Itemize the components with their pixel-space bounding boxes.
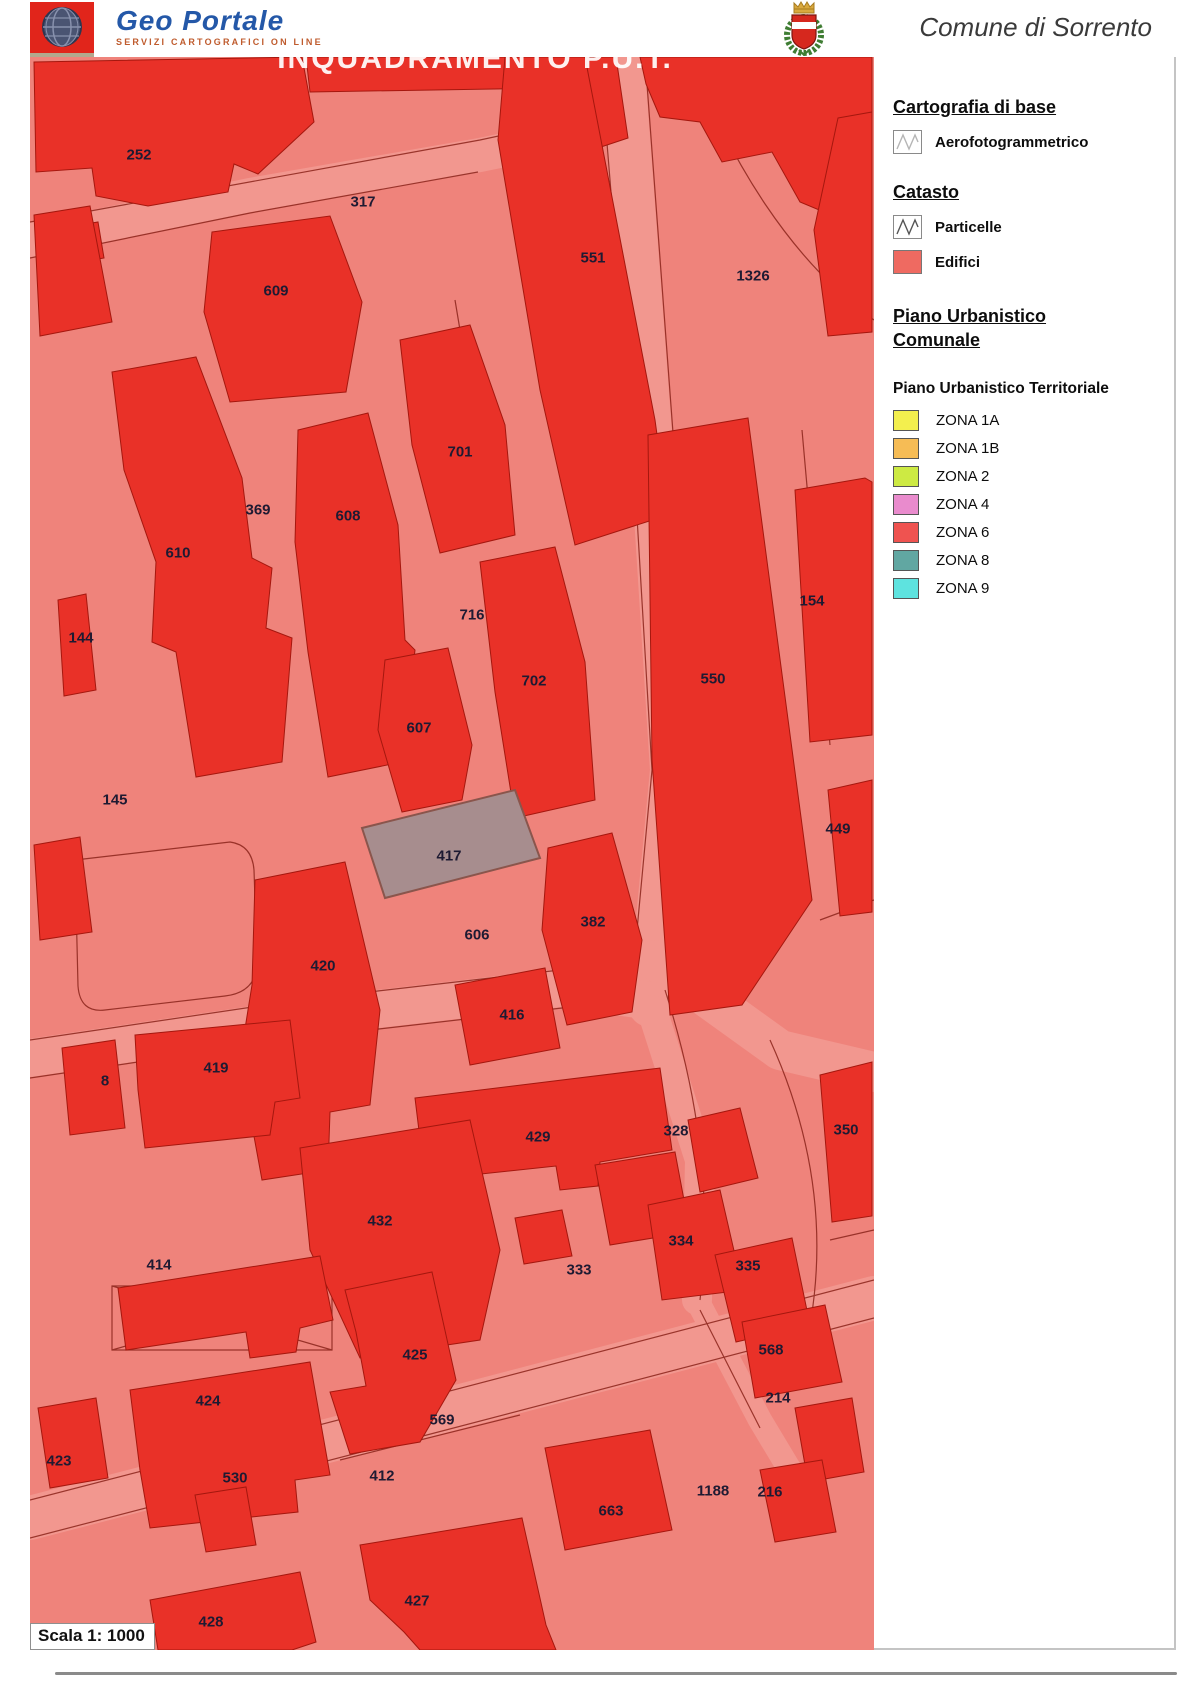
parcel-label-214: 214	[765, 1390, 790, 1407]
parcel-label-328: 328	[663, 1123, 688, 1140]
parcel-label-610: 610	[165, 545, 190, 562]
legend-panel: Cartografia di base Aerofotogrammetrico …	[874, 57, 1176, 1650]
parcel-label-702: 702	[521, 673, 546, 690]
parcel-label-145: 145	[102, 792, 127, 809]
parcel-label-663: 663	[598, 1503, 623, 1520]
legend-item: Particelle	[893, 215, 1174, 239]
parcel-label-449: 449	[825, 821, 850, 838]
parcel-label-609: 609	[263, 283, 288, 300]
parcel-label-252: 252	[126, 147, 151, 164]
parcel-label-428: 428	[198, 1614, 223, 1631]
legend-items-catasto: ParticelleEdifici	[893, 215, 1174, 274]
parcel-label-429: 429	[525, 1129, 550, 1146]
zigzag-swatch-icon	[893, 215, 922, 239]
zone-row-zona-2: ZONA 2	[893, 462, 1174, 490]
parcel-label-607: 607	[406, 720, 431, 737]
parcel-label-335: 335	[735, 1258, 760, 1275]
brand-title[interactable]: Geo Portale	[116, 6, 323, 36]
parcel-label-369: 369	[245, 502, 270, 519]
parcel-label-1326: 1326	[736, 268, 769, 285]
zone-row-zona-4: ZONA 4	[893, 490, 1174, 518]
legend-item: Aerofotogrammetrico	[893, 130, 1174, 154]
zone-row-zona-9: ZONA 9	[893, 574, 1174, 602]
header-bar: Geo Portale SERVIZI CARTOGRAFICI ON LINE…	[0, 0, 1182, 57]
parcel-label-419: 419	[203, 1060, 228, 1077]
parcel-label-414: 414	[146, 1257, 171, 1274]
parcel-label-350: 350	[833, 1122, 858, 1139]
parcel-label-334: 334	[668, 1233, 693, 1250]
parcel-label-412: 412	[369, 1468, 394, 1485]
legend-item: Edifici	[893, 250, 1174, 274]
zone-label: ZONA 8	[936, 552, 989, 569]
zone-label: ZONA 2	[936, 468, 989, 485]
legend-section-title-catasto: Catasto	[893, 180, 1108, 204]
brand-subtitle: SERVIZI CARTOGRAFICI ON LINE	[116, 37, 323, 47]
zone-label: ZONA 4	[936, 496, 989, 513]
parcel-label-568: 568	[758, 1342, 783, 1359]
zigzag-swatch-icon	[893, 130, 922, 154]
put-zones-list: ZONA 1AZONA 1BZONA 2ZONA 4ZONA 6ZONA 8ZO…	[893, 406, 1174, 602]
parcel-label-423: 423	[46, 1453, 71, 1470]
sorrento-coat-of-arms-icon	[781, 1, 827, 61]
map-title-overlay: INQUADRAMENTO P.U.T.	[277, 57, 673, 76]
parcel-label-382: 382	[580, 914, 605, 931]
legend-section-title-cartografia: Cartografia di base	[893, 95, 1108, 119]
parcel-label-144: 144	[68, 630, 93, 647]
zone-row-zona-6: ZONA 6	[893, 518, 1174, 546]
parcel-label-154: 154	[799, 593, 824, 610]
zone-color-swatch	[893, 550, 919, 571]
legend-item-label: Aerofotogrammetrico	[935, 134, 1088, 151]
parcel-label-317: 317	[350, 194, 375, 211]
parcel-label-551: 551	[580, 250, 605, 267]
parcel-label-550: 550	[700, 671, 725, 688]
cadastral-map[interactable]: INQUADRAMENTO P.U.T. 2523175511326609701…	[30, 57, 874, 1650]
scale-label: Scala 1: 1000	[30, 1623, 155, 1650]
parcel-label-432: 432	[367, 1213, 392, 1230]
municipality-title: Comune di Sorrento	[919, 12, 1152, 43]
parcel-label-569: 569	[429, 1412, 454, 1429]
parcel-label-425: 425	[402, 1347, 427, 1364]
zone-color-swatch	[893, 522, 919, 543]
parcel-label-424: 424	[195, 1393, 220, 1410]
parcel-label-608: 608	[335, 508, 360, 525]
parcel-label-216: 216	[757, 1484, 782, 1501]
geoportale-logo[interactable]	[30, 2, 94, 57]
zone-color-swatch	[893, 494, 919, 515]
put-title: Piano Urbanistico Territoriale	[893, 380, 1174, 398]
parcel-label-416: 416	[499, 1007, 524, 1024]
zone-row-zona-1b: ZONA 1B	[893, 434, 1174, 462]
parcel-label-417: 417	[436, 848, 461, 865]
parcel-label-606: 606	[464, 927, 489, 944]
zone-label: ZONA 6	[936, 524, 989, 541]
parcel-label-427: 427	[404, 1593, 429, 1610]
globe-icon	[30, 2, 94, 53]
parcel-label-716: 716	[459, 607, 484, 624]
parcel-label-420: 420	[310, 958, 335, 975]
parcel-label-530: 530	[222, 1470, 247, 1487]
zone-color-swatch	[893, 438, 919, 459]
zone-color-swatch	[893, 578, 919, 599]
zone-label: ZONA 9	[936, 580, 989, 597]
zone-row-zona-1a: ZONA 1A	[893, 406, 1174, 434]
parcel-label-8: 8	[101, 1073, 109, 1090]
parcel-label-333: 333	[566, 1262, 591, 1279]
zone-label: ZONA 1B	[936, 440, 999, 457]
zone-row-zona-8: ZONA 8	[893, 546, 1174, 574]
legend-item-label: Particelle	[935, 219, 1002, 236]
zone-color-swatch	[893, 466, 919, 487]
zone-color-swatch	[893, 410, 919, 431]
parcel-label-701: 701	[447, 444, 472, 461]
legend-items-cartografia: Aerofotogrammetrico	[893, 130, 1174, 154]
legend-item-label: Edifici	[935, 254, 980, 271]
zone-label: ZONA 1A	[936, 412, 999, 429]
edifici-swatch	[893, 250, 922, 274]
bottom-divider	[55, 1672, 1177, 1675]
parcel-label-1188: 1188	[697, 1483, 730, 1500]
legend-section-title-puc: Piano Urbanistico Comunale	[893, 304, 1108, 352]
